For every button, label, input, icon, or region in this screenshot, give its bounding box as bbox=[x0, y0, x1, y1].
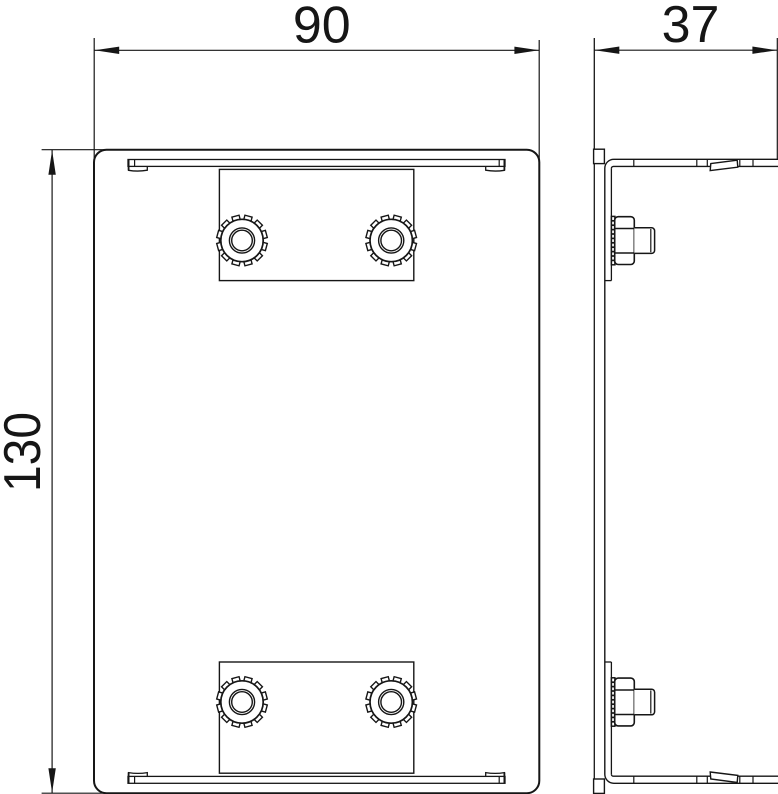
svg-text:90: 90 bbox=[293, 0, 351, 55]
svg-text:130: 130 bbox=[0, 412, 52, 492]
svg-text:37: 37 bbox=[662, 0, 720, 54]
